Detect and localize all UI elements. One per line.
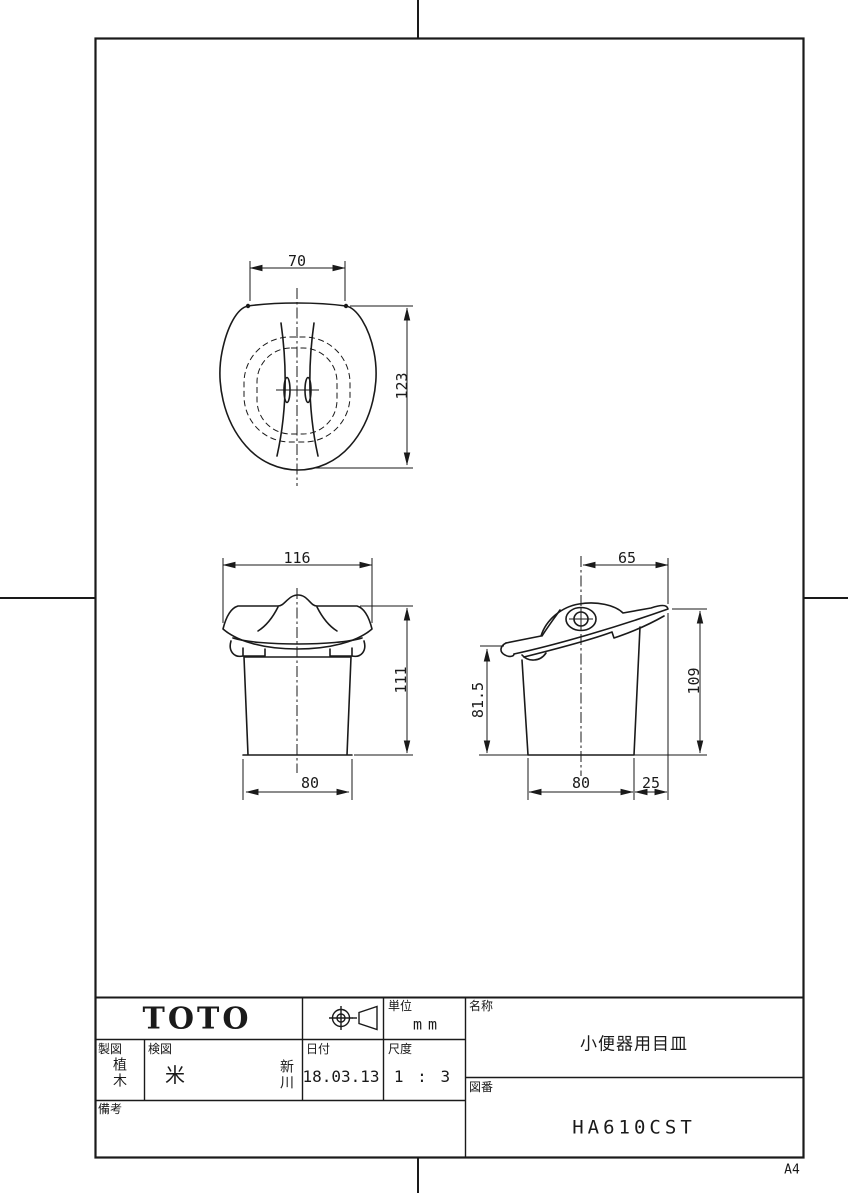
name-value: 小便器用目皿	[580, 1036, 688, 1053]
dim-side-bottom-offset: 25	[642, 774, 660, 792]
remarks-label: 備考	[98, 1103, 122, 1115]
dim-top-height: 123	[393, 372, 411, 399]
front-view-dimensions	[223, 558, 413, 800]
side-view-dimensions	[479, 558, 707, 800]
scale-value: 1 : 3	[394, 1069, 452, 1085]
name-label: 名称	[469, 1000, 493, 1012]
side-view	[479, 556, 707, 800]
top-view	[220, 261, 413, 486]
unit-value: mm	[413, 1018, 443, 1033]
top-view-outline	[220, 303, 376, 470]
unit-label: 単位	[388, 1000, 412, 1012]
checker-stamp-2: 新川	[280, 1059, 294, 1091]
side-view-neck	[542, 610, 560, 636]
dim-top-width: 70	[288, 252, 306, 270]
checker-stamp-1: 米	[165, 1066, 185, 1086]
date-label: 日付	[306, 1043, 330, 1055]
projection-symbol-icon	[329, 1006, 377, 1030]
paper-size-label: A4	[784, 1164, 800, 1177]
side-view-rim-strip	[524, 616, 664, 657]
drafter-stamp: 植木	[113, 1057, 127, 1089]
side-view-blade-outline	[506, 603, 668, 654]
dim-front-top-width: 116	[283, 549, 310, 567]
drawing-number-value: HA610CST	[572, 1119, 696, 1138]
drawing-sheet: 70 123 116 111 80 65 81.5 109 80 25 TOTO…	[0, 0, 848, 1200]
dim-side-top-width: 65	[618, 549, 636, 567]
drawing-number-label: 図番	[469, 1081, 493, 1093]
sheet-frame	[0, 0, 848, 1193]
dim-front-height: 111	[392, 666, 410, 693]
toto-logo: TOTO	[143, 1002, 252, 1037]
front-view	[223, 558, 413, 800]
dim-front-bottom-width: 80	[301, 774, 319, 792]
scale-label: 尺度	[388, 1043, 412, 1055]
dim-side-left-height: 81.5	[469, 682, 487, 718]
date-value: 18.03.13	[302, 1069, 379, 1085]
drafter-label: 製図	[98, 1043, 122, 1055]
side-view-tip-curl	[501, 643, 514, 656]
dim-side-right-height: 109	[685, 667, 703, 694]
dim-side-bottom-width: 80	[572, 774, 590, 792]
top-view-dimensions	[250, 261, 413, 468]
checker-label: 検図	[148, 1043, 172, 1055]
